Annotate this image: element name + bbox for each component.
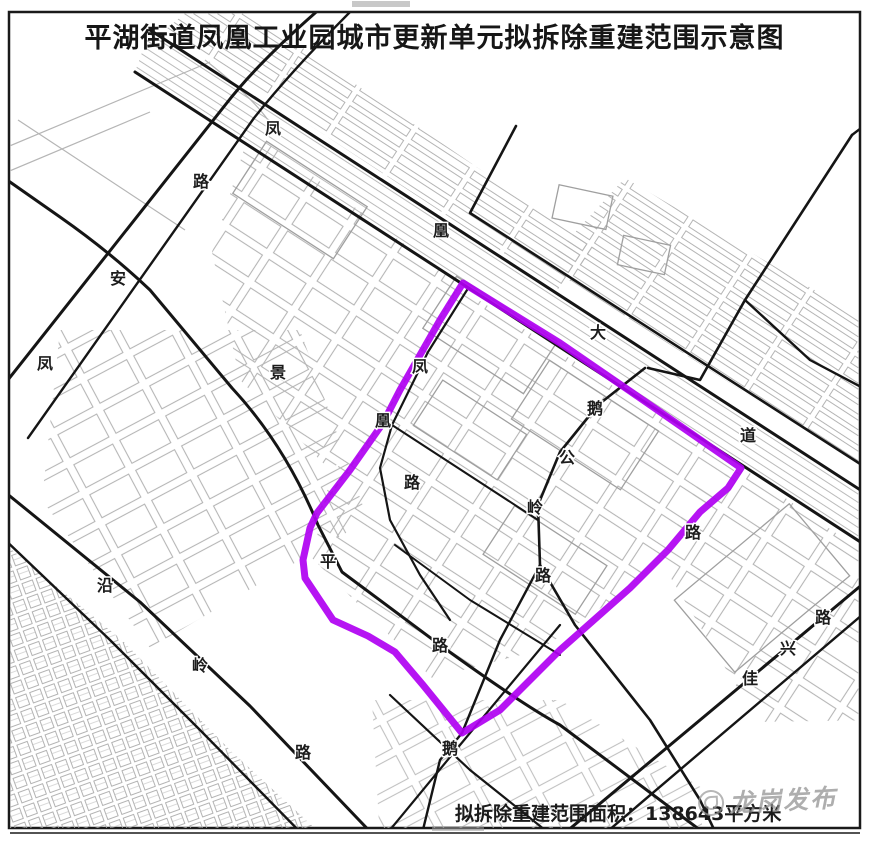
road-label-char: 岭 bbox=[527, 498, 543, 517]
watermark-text: 龙岗发布 bbox=[728, 778, 838, 820]
road-label-char: 兴 bbox=[780, 639, 796, 658]
road-label-char: 沿 bbox=[97, 576, 113, 595]
road-label-char: 凤 bbox=[37, 354, 53, 373]
road-label-char: 路 bbox=[295, 743, 312, 762]
page-title: 平湖街道凤凰工业园城市更新单元拟拆除重建范围示意图 bbox=[9, 16, 860, 55]
road-label-char: 公 bbox=[559, 448, 575, 467]
road-label-char: 平 bbox=[320, 552, 336, 571]
base-map: 凤 凰 大 道 路 安 凤 景 凤 凰 路 平 路 鹅 公 岭 bbox=[0, 0, 882, 842]
road-label-char: 路 bbox=[193, 172, 210, 191]
road-label-char: 凰 bbox=[375, 411, 391, 430]
watermark-logo-icon bbox=[697, 789, 724, 816]
road-label-char: 路 bbox=[432, 636, 449, 655]
road-label-char: 凤 bbox=[412, 357, 428, 376]
road-label-char: 佳 bbox=[742, 669, 758, 688]
road-label-char: 凰 bbox=[433, 221, 449, 240]
road-label-char: 路 bbox=[815, 608, 832, 627]
road-label-char: 鹅 bbox=[587, 399, 603, 418]
road-label-char: 大 bbox=[590, 323, 606, 342]
road-label-char: 路 bbox=[685, 523, 702, 542]
road-label-char: 安 bbox=[110, 269, 126, 288]
road-label-char: 凤 bbox=[265, 119, 281, 138]
micro-text-smudge-top bbox=[352, 1, 410, 7]
road-label-char: 景 bbox=[270, 363, 286, 382]
road-label-char: 岭 bbox=[192, 656, 208, 675]
road-label-char: 路 bbox=[404, 473, 421, 492]
area-label: 拟拆除重建范围面积： bbox=[455, 803, 645, 825]
building-textures bbox=[0, 0, 882, 842]
micro-text-smudge-bottom bbox=[432, 826, 484, 831]
road-label-char: 鹅 bbox=[442, 739, 458, 758]
watermark: 龙岗发布 bbox=[697, 778, 838, 821]
road-label-char: 路 bbox=[535, 566, 552, 585]
road-label-char: 道 bbox=[740, 426, 756, 445]
map-figure: 凤 凰 大 道 路 安 凤 景 凤 凰 路 平 路 鹅 公 岭 bbox=[0, 0, 882, 842]
